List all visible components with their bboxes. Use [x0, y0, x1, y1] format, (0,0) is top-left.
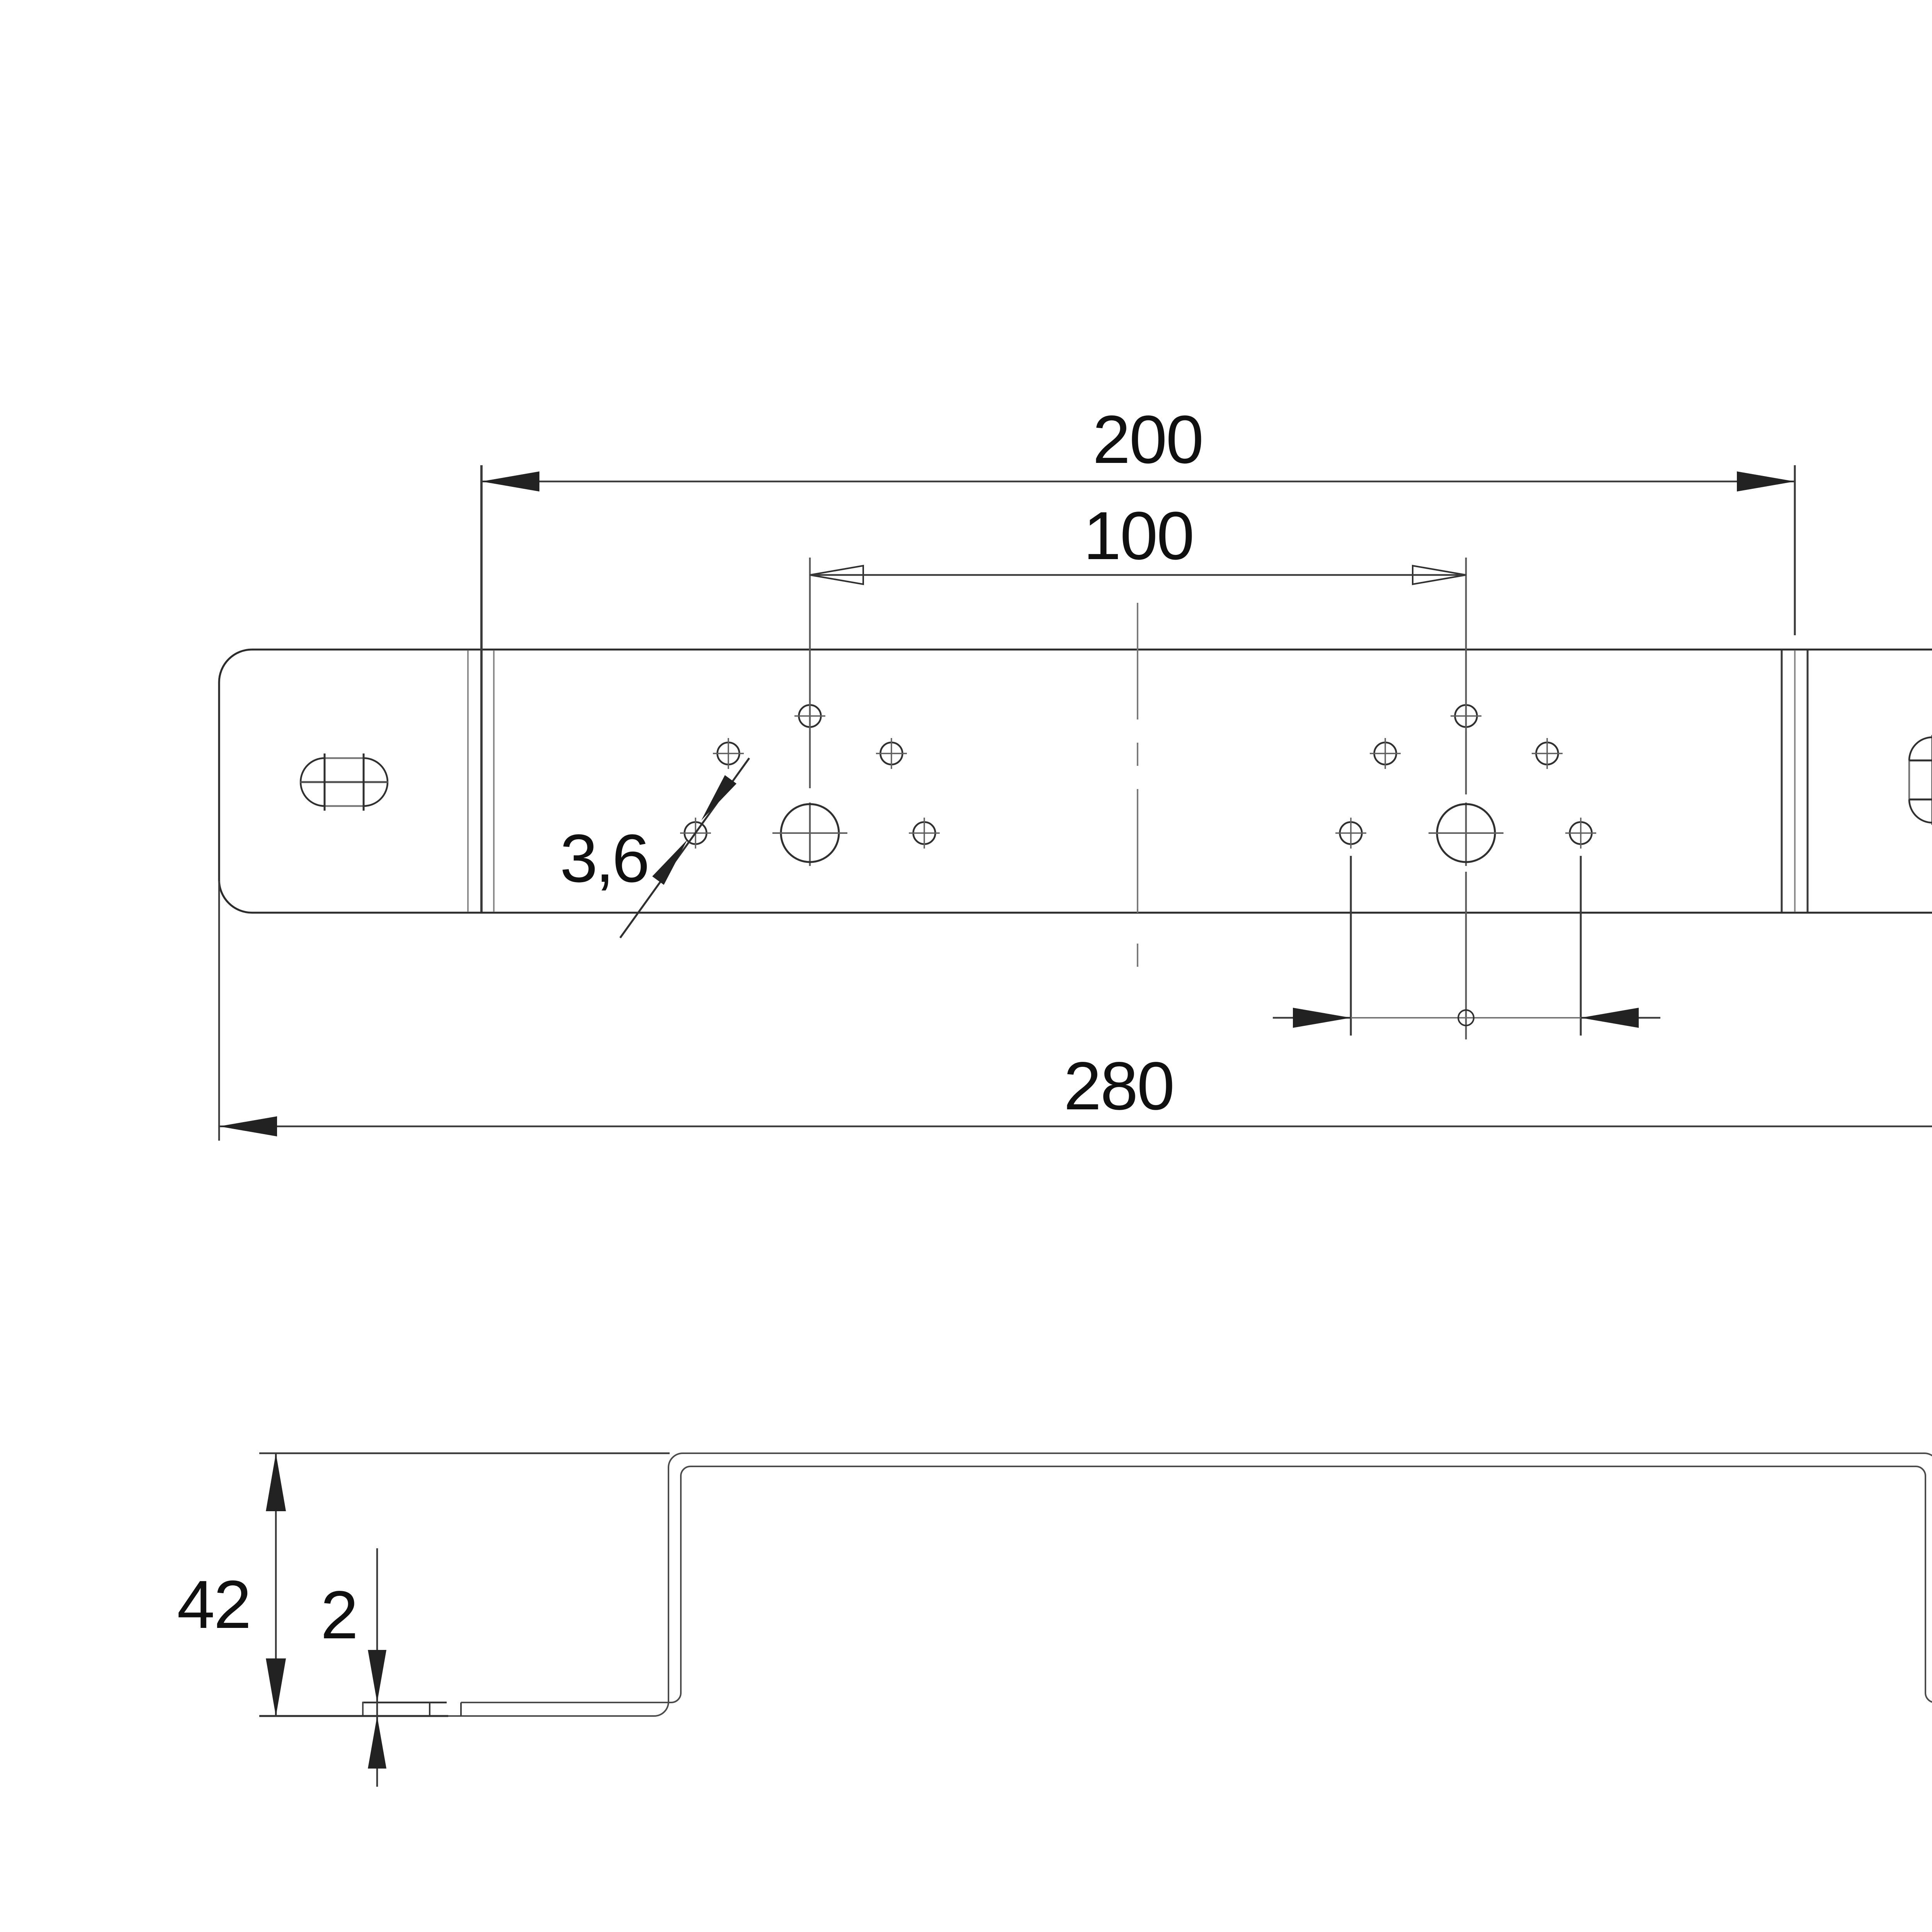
svg-text:3,6: 3,6 [560, 821, 648, 896]
svg-text:2: 2 [321, 1577, 357, 1653]
svg-text:100: 100 [1083, 498, 1194, 574]
svg-text:200: 200 [1093, 402, 1203, 478]
svg-text:42: 42 [177, 1567, 250, 1643]
svg-text:280: 280 [1064, 1048, 1174, 1124]
